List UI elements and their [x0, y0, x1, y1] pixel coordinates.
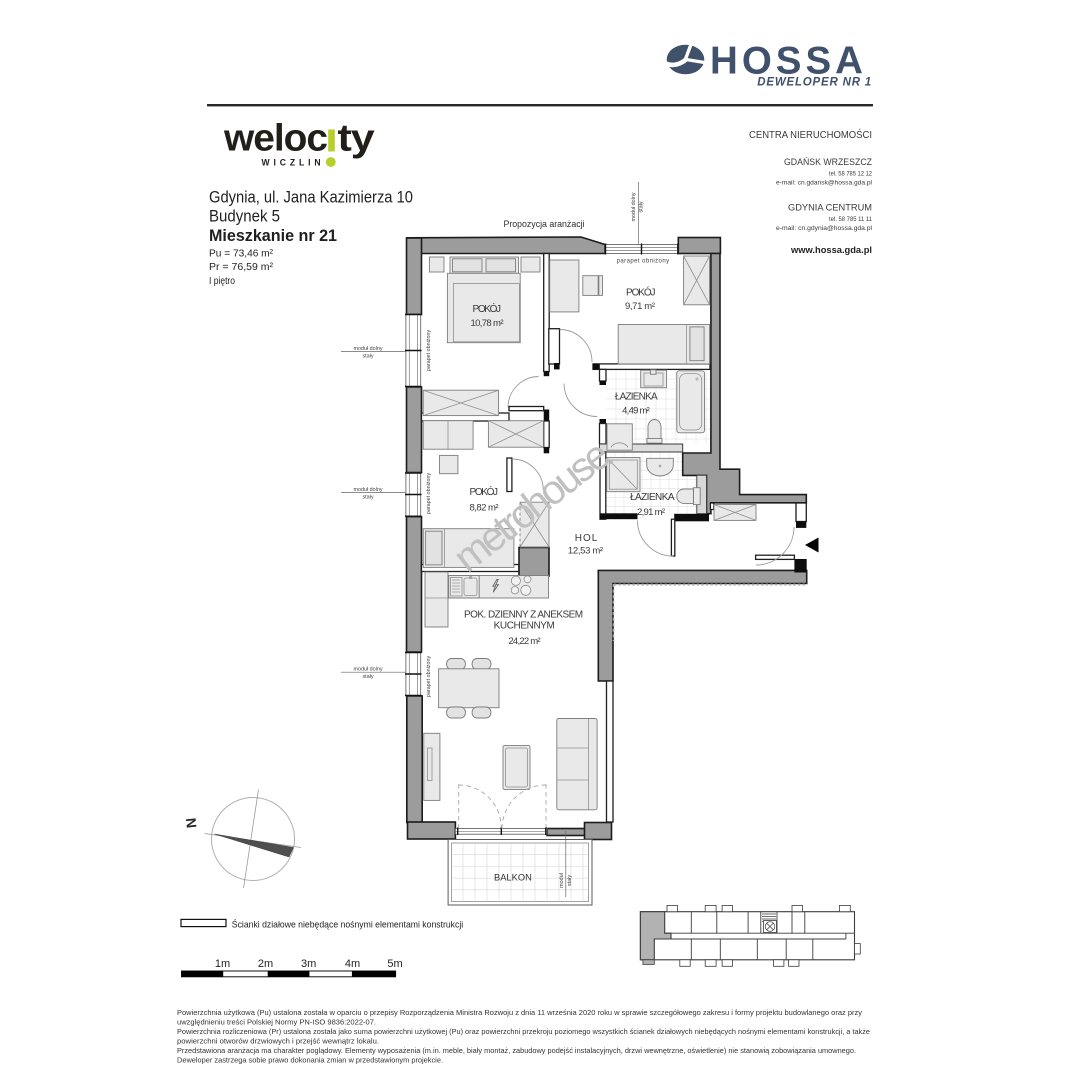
svg-text:Powierzchnia rozliczeniowa (Pr: Powierzchnia rozliczeniowa (Pr) ustalona…: [177, 1027, 870, 1036]
svg-text:Budynek 5: Budynek 5: [209, 208, 280, 226]
svg-text:Przedstawiona aranżacja ma cha: Przedstawiona aranżacja ma charakter pog…: [177, 1046, 856, 1055]
svg-text:moduł dolny: moduł dolny: [631, 192, 637, 221]
svg-text:stały: stały: [362, 354, 373, 360]
svg-text:CENTRA NIERUCHOMOŚCI: CENTRA NIERUCHOMOŚCI: [749, 129, 872, 141]
svg-text:parapet obniżony: parapet obniżony: [426, 330, 432, 372]
svg-text:1m: 1m: [215, 958, 230, 970]
svg-text:Powierzchnia użytkowa (Pu) ust: Powierzchnia użytkowa (Pu) ustalona zost…: [177, 1008, 862, 1017]
svg-text:24,22 m²: 24,22 m²: [508, 636, 540, 647]
svg-text:POKÓJ: POKÓJ: [470, 485, 499, 498]
svg-text:3m: 3m: [301, 958, 316, 970]
svg-text:KUCHENNYM: KUCHENNYM: [494, 621, 556, 632]
svg-text:DEWELOPER NR 1: DEWELOPER NR 1: [757, 77, 872, 89]
svg-text:Propozycja aranżacji: Propozycja aranżacji: [504, 219, 585, 230]
svg-text:ŁAZIENKA: ŁAZIENKA: [615, 392, 658, 403]
svg-text:tel. 58 785 12 12: tel. 58 785 12 12: [829, 172, 873, 178]
svg-text:BALKON: BALKON: [494, 873, 533, 883]
svg-text:parapet obniżony: parapet obniżony: [426, 656, 432, 698]
svg-text:2,91 m²: 2,91 m²: [637, 507, 665, 518]
svg-text:tel. 58 785 11 11: tel. 58 785 11 11: [829, 217, 873, 223]
svg-text:Mieszkanie nr 21: Mieszkanie nr 21: [209, 227, 337, 245]
svg-text:N: N: [183, 817, 200, 829]
svg-text:moduł: moduł: [559, 872, 565, 887]
svg-text:uwzględnieniu treści Polskiej: uwzględnieniu treści Polskiej Normy PN-I…: [177, 1018, 376, 1027]
svg-text:powierzchni otworów drzwiowych: powierzchni otworów drzwiowych i przejść…: [177, 1037, 379, 1046]
svg-text:ty: ty: [338, 118, 375, 160]
svg-text:I piętro: I piętro: [209, 275, 235, 287]
svg-text:weloc: weloc: [223, 118, 328, 160]
svg-text:12,53 m²: 12,53 m²: [568, 546, 603, 557]
svg-text:Pu = 73,46 m²: Pu = 73,46 m²: [209, 248, 273, 260]
svg-text:parapet obniżony: parapet obniżony: [426, 473, 432, 515]
svg-text:5m: 5m: [387, 958, 402, 970]
svg-text:POKÓJ: POKÓJ: [473, 302, 502, 315]
svg-text:WICZLIN: WICZLIN: [262, 158, 325, 169]
svg-text:www.hossa.gda.pl: www.hossa.gda.pl: [790, 244, 872, 255]
svg-text:Gdynia, ul. Jana Kazimierza 10: Gdynia, ul. Jana Kazimierza 10: [209, 189, 413, 207]
svg-text:GDAŃSK WRZESZCZ: GDAŃSK WRZESZCZ: [784, 157, 872, 167]
svg-text:9,71 m²: 9,71 m²: [625, 301, 655, 312]
svg-text:e-mail: cn.gdansk@hossa.gda.pl: e-mail: cn.gdansk@hossa.gda.pl: [776, 180, 873, 187]
svg-text:4,49 m²: 4,49 m²: [622, 406, 650, 417]
svg-text:moduł dolny: moduł dolny: [353, 667, 382, 673]
svg-text:moduł dolny: moduł dolny: [353, 487, 382, 493]
svg-text:2m: 2m: [258, 958, 273, 970]
svg-text:moduł dolny: moduł dolny: [353, 346, 382, 352]
svg-text:ŁAZIENKA: ŁAZIENKA: [630, 492, 675, 503]
svg-text:stały: stały: [639, 201, 645, 212]
svg-text:HOL: HOL: [575, 533, 598, 544]
svg-text:Deweloper zastrzega sobie praw: Deweloper zastrzega sobie prawo dokonani…: [177, 1056, 443, 1065]
svg-text:8,82 m²: 8,82 m²: [470, 503, 499, 514]
svg-text:parapet obniżony: parapet obniżony: [617, 259, 670, 265]
svg-text:POKÓJ: POKÓJ: [626, 286, 656, 299]
svg-text:GDYNIA CENTRUM: GDYNIA CENTRUM: [788, 203, 872, 213]
svg-text:stały: stały: [362, 495, 373, 501]
svg-text:POK. DZIENNY Z ANEKSEM: POK. DZIENNY Z ANEKSEM: [464, 610, 584, 621]
svg-text:Ścianki działowe niebędące noś: Ścianki działowe niebędące nośnymi eleme…: [232, 919, 463, 931]
svg-text:4m: 4m: [345, 958, 360, 970]
svg-text:stały: stały: [567, 875, 573, 886]
svg-text:e-mail: cn.gdynia@hossa.gda.pl: e-mail: cn.gdynia@hossa.gda.pl: [776, 225, 873, 232]
svg-text:stały: stały: [362, 674, 373, 680]
svg-text:10,78 m²: 10,78 m²: [471, 318, 504, 329]
svg-text:Pr = 76,59 m²: Pr = 76,59 m²: [209, 261, 274, 273]
